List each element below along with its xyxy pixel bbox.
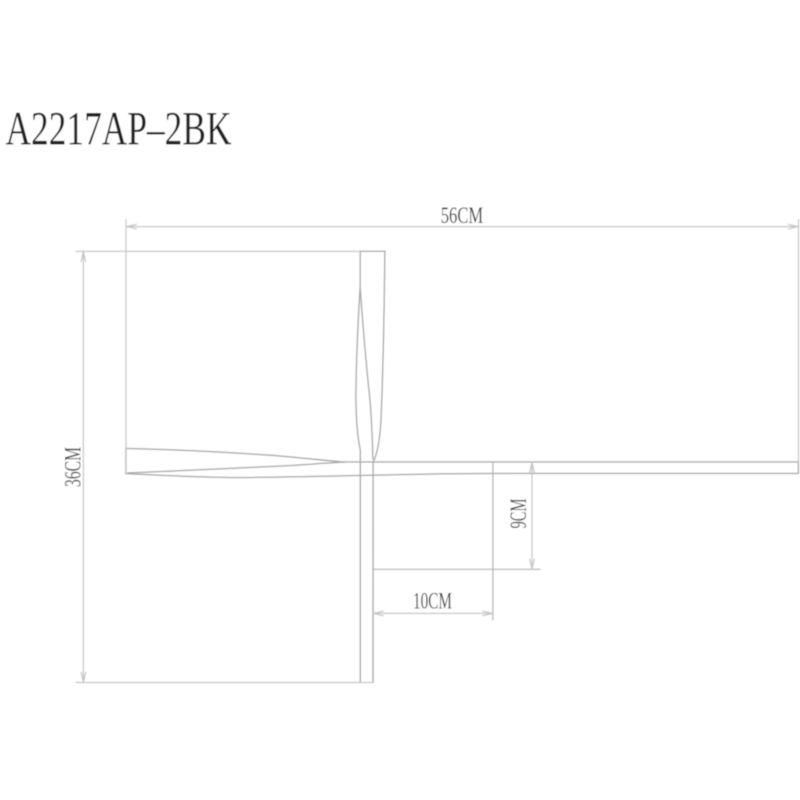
svg-text:56CM: 56CM — [441, 203, 484, 228]
svg-text:36CM: 36CM — [61, 447, 86, 487]
svg-text:A2217AP–2BK: A2217AP–2BK — [6, 103, 232, 156]
svg-text:9CM: 9CM — [506, 499, 531, 529]
svg-text:10CM: 10CM — [413, 589, 452, 614]
